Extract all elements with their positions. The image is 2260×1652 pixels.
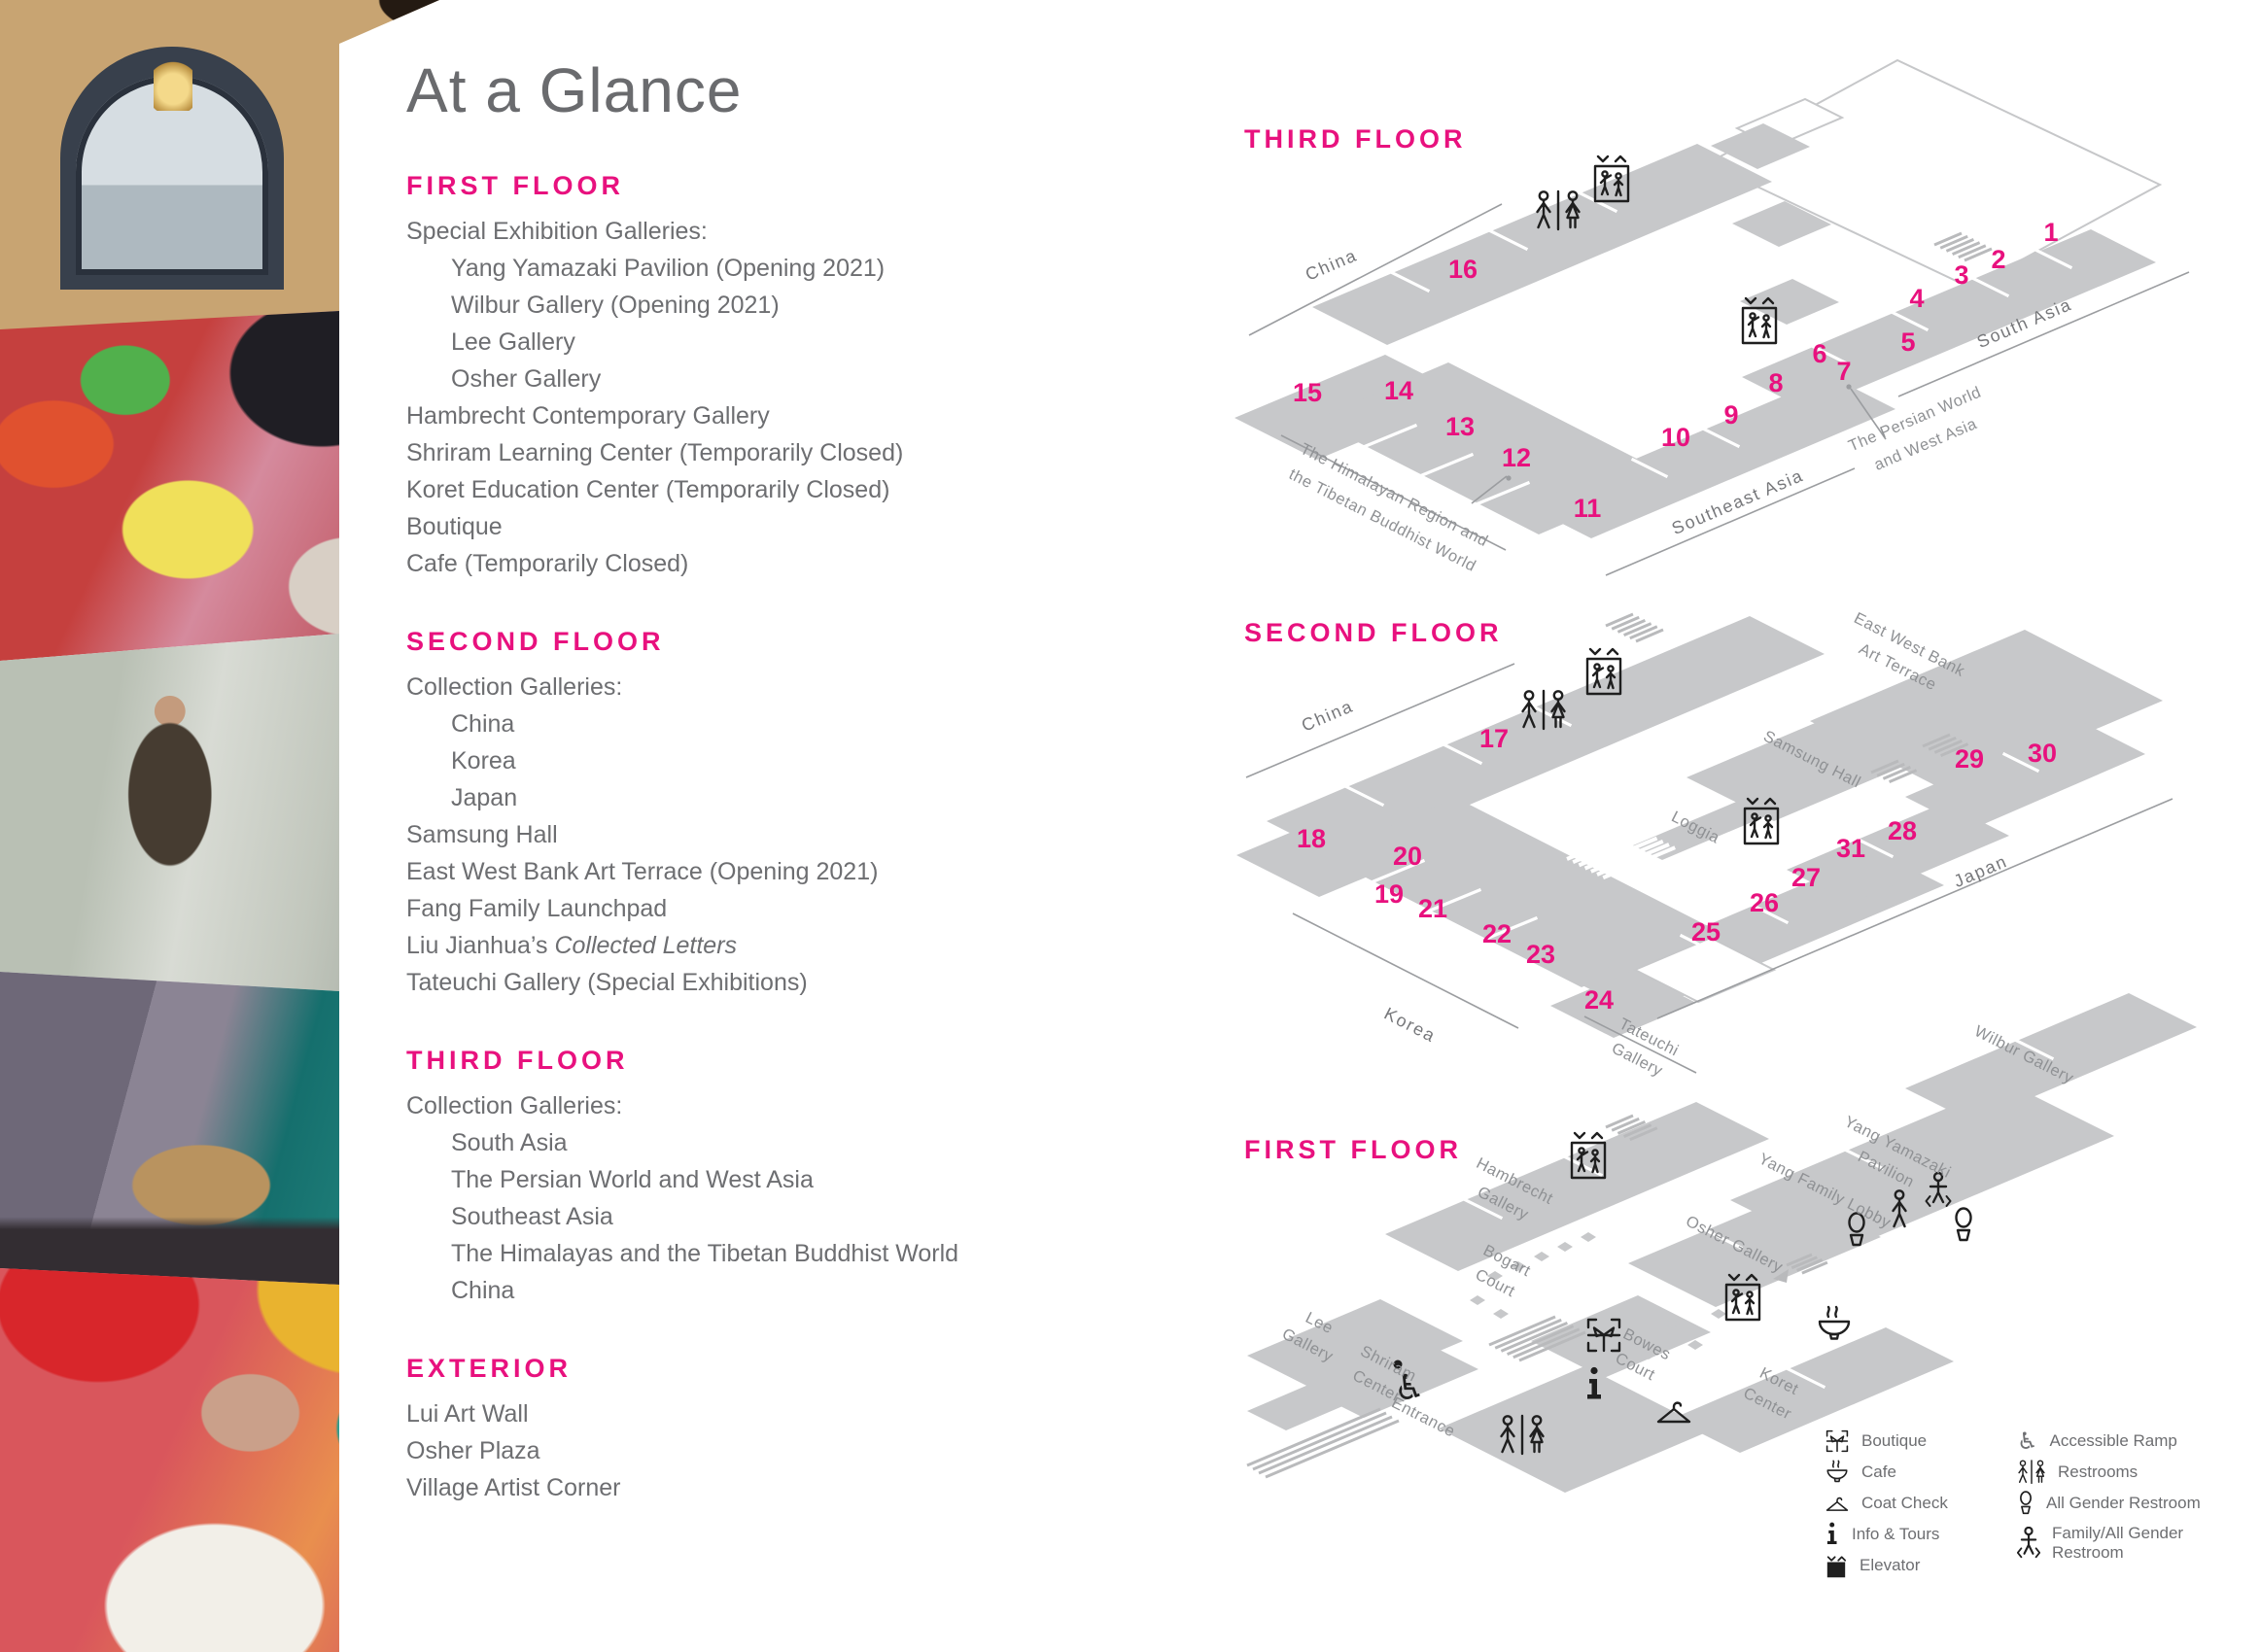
- room-number: 10: [1661, 423, 1690, 452]
- legend-row: Boutique: [1825, 1428, 1927, 1454]
- room-number: 3: [1954, 260, 1968, 290]
- legend-label: Coat Check: [1861, 1494, 1948, 1513]
- room-number: 8: [1768, 368, 1783, 397]
- room-number: 2: [1991, 245, 2005, 274]
- room-number: 5: [1900, 327, 1915, 357]
- map-area-label: China: [1303, 245, 1360, 284]
- room-number: 26: [1750, 888, 1779, 917]
- room-number: 22: [1482, 919, 1512, 948]
- legend-label: Restrooms: [2058, 1463, 2138, 1482]
- map-area-label: Korea: [1381, 1004, 1440, 1047]
- legend-row: All Gender Restroom: [2017, 1491, 2201, 1516]
- room-number: 15: [1293, 378, 1322, 407]
- legend-row: Info & Tours: [1825, 1522, 1939, 1547]
- room-number: 6: [1812, 339, 1826, 368]
- floor-plans: 12345678910111213141516 ChinaSouth AsiaT…: [0, 0, 2260, 1652]
- legend-row: Restrooms: [2017, 1460, 2138, 1485]
- china-wing: [1312, 144, 1772, 345]
- family-all-gender-restroom-icon: [2017, 1527, 2040, 1560]
- legend-label: Elevator: [1860, 1556, 1920, 1575]
- cafe-icon: [1825, 1460, 1850, 1485]
- room-number: 1: [2043, 218, 2058, 247]
- south-block: [1439, 1366, 1711, 1493]
- room-number: 27: [1791, 863, 1821, 892]
- legend-row: ♿ Accessible Ramp: [2017, 1428, 2177, 1454]
- legend-label: All Gender Restroom: [2046, 1494, 2201, 1513]
- room-number: 18: [1297, 824, 1326, 853]
- accessible-ramp-icon: ♿: [2017, 1428, 2038, 1455]
- elevator-icon: [1825, 1552, 1848, 1579]
- legend-row: Coat Check: [1825, 1491, 1948, 1516]
- room-number: 28: [1888, 816, 1917, 845]
- info-tours-icon: [1825, 1522, 1840, 1547]
- all-gender-restroom-icon: [1957, 1209, 1971, 1241]
- room-number: 17: [1479, 724, 1509, 753]
- room-number: 31: [1836, 834, 1865, 863]
- legend-label: Cafe: [1861, 1463, 1896, 1482]
- room-number: 11: [1574, 494, 1602, 523]
- cafe-icon: [1820, 1307, 1849, 1339]
- legend-label: Info & Tours: [1852, 1525, 1939, 1544]
- legend-row: Elevator: [1825, 1553, 1920, 1578]
- first-floor-plan: ♿ HambrechtGalleryBogartCourtLeeGalleryS…: [1247, 993, 2197, 1493]
- coat-check-icon: [1825, 1493, 1850, 1514]
- legend-label: Boutique: [1861, 1431, 1927, 1451]
- room-number: 9: [1723, 400, 1738, 430]
- room-number: 12: [1502, 443, 1531, 472]
- room-number: 20: [1393, 842, 1422, 871]
- room-number: 23: [1526, 940, 1555, 969]
- legend-row: Family/All Gender Restroom: [2017, 1522, 2217, 1565]
- room-number: 21: [1418, 894, 1447, 923]
- room-number: 7: [1836, 357, 1851, 386]
- room-number: 24: [1584, 985, 1614, 1015]
- legend-label: Family/All Gender Restroom: [2052, 1524, 2217, 1563]
- room-number: 19: [1374, 879, 1404, 909]
- second-floor-plan: 171819202122232425262728293031 ChinaKore…: [1236, 609, 2173, 1080]
- all-gender-restroom-icon: [2017, 1491, 2034, 1516]
- boutique-icon: [1825, 1428, 1850, 1454]
- map-area-label: Japan: [1951, 851, 2010, 891]
- legend-label: Accessible Ramp: [2050, 1431, 2177, 1451]
- room-number: 13: [1445, 412, 1475, 441]
- room-number: 16: [1448, 255, 1478, 284]
- map-area-label: China: [1299, 696, 1356, 735]
- legend-row: Cafe: [1825, 1460, 1896, 1485]
- third-floor-plan: 12345678910111213141516 ChinaSouth AsiaT…: [1234, 60, 2189, 575]
- room-number: 29: [1955, 744, 1984, 774]
- room-number: 30: [2028, 739, 2057, 768]
- room-number: 14: [1384, 376, 1413, 405]
- restrooms-icon: [2017, 1460, 2046, 1485]
- room-number: 25: [1691, 917, 1721, 946]
- room-number: 4: [1909, 284, 1924, 313]
